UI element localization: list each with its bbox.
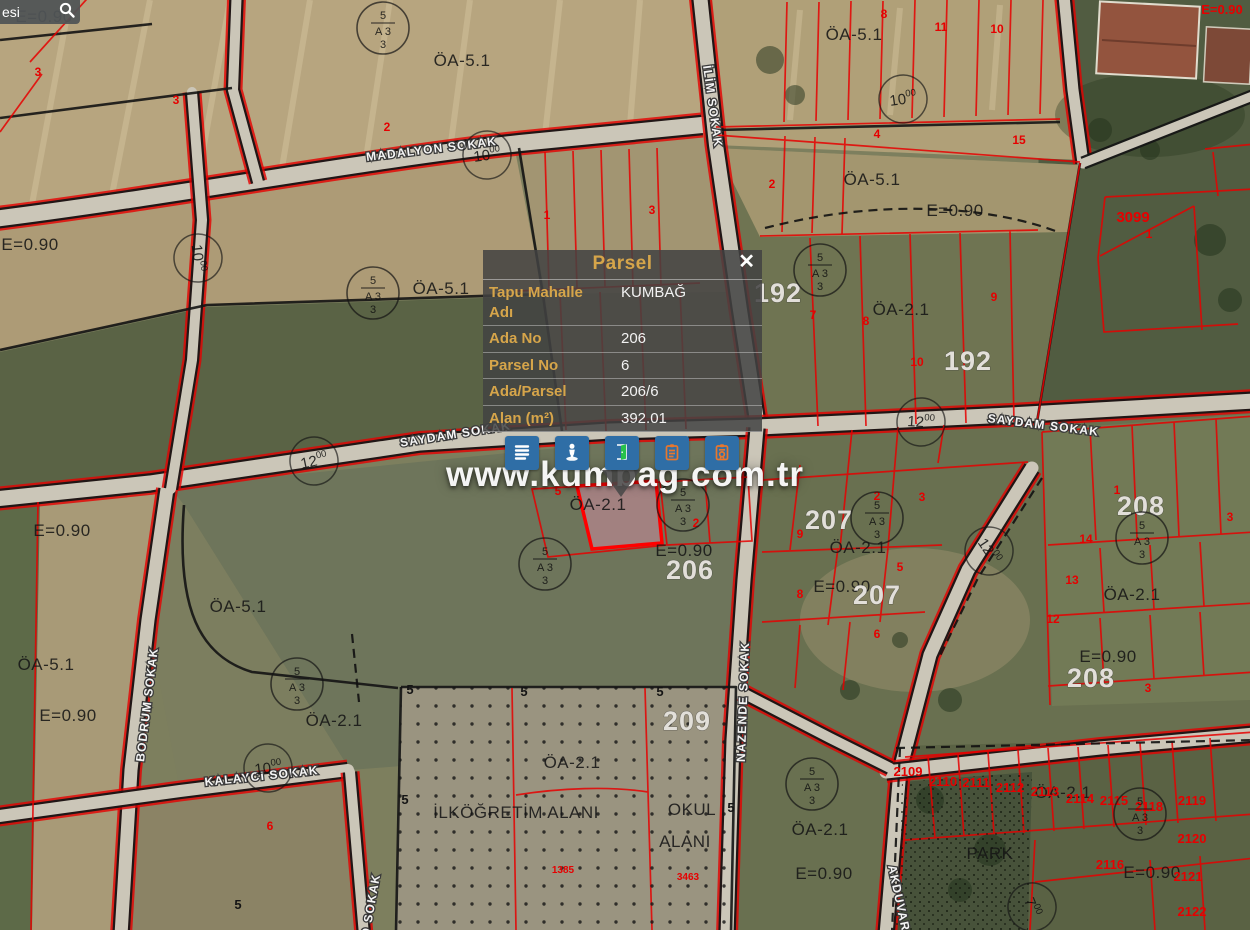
svg-text:5: 5 — [1139, 520, 1145, 532]
svg-text:A 3: A 3 — [365, 291, 381, 303]
spot-marker: 5 — [656, 684, 663, 699]
svg-text:5: 5 — [809, 766, 815, 778]
close-icon[interactable]: ✕ — [738, 251, 755, 273]
menu-list-icon — [512, 442, 532, 465]
svg-text:5: 5 — [680, 487, 686, 499]
parcel-number: 2 — [769, 177, 776, 191]
block-number: 206 — [666, 555, 714, 585]
parcel-number: 3 — [919, 490, 926, 504]
svg-text:5: 5 — [874, 500, 880, 512]
svg-text:3: 3 — [542, 575, 548, 587]
zone-label: ÖA-5.1 — [18, 655, 75, 674]
parcel-number: 2109 — [894, 764, 923, 779]
popup-row: Parsel No 6 — [483, 353, 762, 380]
block-number: 209 — [663, 706, 711, 736]
parcel-number: 3 — [1145, 681, 1152, 695]
popup-row: Alan (m²) 392.01 — [483, 406, 762, 433]
parcel-number: 2113 — [1031, 784, 1059, 799]
parcel-number: 8 — [863, 314, 870, 328]
zone-label: ÖA-2.1 — [1104, 585, 1161, 604]
svg-text:3: 3 — [370, 304, 376, 316]
zone-label: ÖA-2.1 — [570, 495, 627, 514]
parcel-number: 7 — [810, 308, 817, 322]
svg-text:5: 5 — [370, 275, 376, 287]
parcel-number: 10 — [910, 355, 924, 369]
row-label: Alan (m²) — [489, 409, 595, 429]
parcel-number: 5 — [897, 560, 904, 574]
zone-label: ÖA-2.1 — [792, 820, 849, 839]
svg-text:A 3: A 3 — [1132, 812, 1148, 824]
svg-text:5: 5 — [542, 546, 548, 558]
clipboard-button[interactable] — [655, 436, 689, 470]
report-icon — [712, 442, 732, 465]
search-bar: esi — [0, 0, 80, 24]
popup-row: Ada No 206 — [483, 326, 762, 353]
parcel-number: 15 — [1012, 133, 1026, 147]
parcel-number: 6 — [874, 627, 881, 641]
zone-label: ÖA-5.1 — [413, 279, 470, 298]
row-label: Tapu Mahalle Adı — [489, 283, 595, 322]
search-icon[interactable] — [58, 1, 76, 24]
popup-row: Tapu Mahalle Adı KUMBAĞ — [483, 280, 762, 326]
zone-label: E=0.90 — [926, 201, 983, 220]
popup-toolbar — [505, 436, 739, 470]
parcel-number: 9 — [797, 527, 804, 541]
zone-label: ÖA-5.1 — [210, 597, 267, 616]
zone-label: E=0.90 — [795, 864, 852, 883]
parcel-number: 2116 — [1096, 857, 1124, 872]
svg-text:3: 3 — [1137, 825, 1143, 837]
parcel-number: 3463 — [677, 872, 700, 883]
svg-text:A 3: A 3 — [537, 562, 553, 574]
parcel-popup: Parsel ✕ Tapu Mahalle Adı KUMBAĞ Ada No … — [483, 250, 762, 432]
door-button[interactable] — [605, 436, 639, 470]
parcel-number: 1 — [1146, 227, 1153, 241]
parcel-number: 2110 — [929, 774, 957, 789]
popup-title: Parsel — [592, 253, 652, 274]
svg-text:A 3: A 3 — [812, 268, 828, 280]
block-number: 192 — [944, 346, 992, 376]
spot-marker: 5 — [234, 897, 241, 912]
parcel-number: 14 — [1079, 532, 1093, 546]
row-value: 206 — [621, 329, 756, 349]
popup-pointer — [602, 470, 640, 497]
zone-label: E=0.90 — [1123, 863, 1180, 882]
door-icon — [612, 442, 632, 465]
parcel-number: 3 — [1227, 510, 1234, 524]
street-view-icon — [562, 442, 582, 465]
zone-label: ÖA-2.1 — [306, 711, 363, 730]
svg-text:5: 5 — [294, 666, 300, 678]
parcel-number: 2111 — [962, 775, 990, 790]
svg-text:A 3: A 3 — [869, 516, 885, 528]
row-value: 206/6 — [621, 382, 756, 402]
parcel-number: 2121 — [1174, 869, 1203, 884]
parcel-number: 11 — [935, 20, 948, 34]
row-label: Ada No — [489, 329, 595, 349]
svg-text:3: 3 — [380, 39, 386, 51]
parcel-number: 9 — [991, 290, 998, 304]
zone-label: E=0.90 — [39, 706, 96, 725]
parcel-number: 1385 — [552, 865, 575, 876]
spot-marker: 5 — [406, 682, 413, 697]
svg-text:5: 5 — [817, 252, 823, 264]
parcel-number: 2120 — [1178, 831, 1207, 846]
parcel-number: 3099 — [1116, 209, 1149, 226]
popup-row: Ada/Parsel 206/6 — [483, 379, 762, 406]
search-input[interactable]: esi — [2, 4, 20, 20]
parcel-number: 2 — [384, 120, 391, 134]
parcel-number: E=0.90 — [1201, 2, 1243, 17]
svg-text:A 3: A 3 — [804, 782, 820, 794]
parcel-number: 2119 — [1178, 793, 1206, 808]
row-value: 6 — [621, 356, 756, 376]
parcel-number: 2112 — [996, 780, 1024, 795]
block-number: 207 — [853, 580, 901, 610]
zone-label: ÖA-5.1 — [434, 51, 491, 70]
svg-text:3: 3 — [874, 529, 880, 541]
svg-text:3: 3 — [809, 795, 815, 807]
zone-label: ÖA-5.1 — [826, 25, 883, 44]
zone-label: ÖA-2.1 — [873, 300, 930, 319]
parcel-number: 13 — [1065, 573, 1079, 587]
spot-marker: 5 — [727, 800, 734, 815]
row-label: Ada/Parsel — [489, 382, 595, 402]
svg-text:A 3: A 3 — [675, 503, 691, 515]
row-label: Parsel No — [489, 356, 595, 376]
street-view-button[interactable] — [555, 436, 589, 470]
svg-text:A 3: A 3 — [375, 26, 391, 38]
spot-marker: 5 — [520, 684, 527, 699]
parcel-number: 12 — [1046, 612, 1060, 626]
parcel-number: 2114 — [1066, 791, 1095, 806]
zone-label: E=0.90 — [33, 521, 90, 540]
svg-text:3: 3 — [294, 695, 300, 707]
zone-label: İLKÖĞRETİM ALANI — [433, 803, 599, 822]
zone-label: OKUL — [668, 800, 716, 819]
parcel-number: 10 — [990, 22, 1004, 36]
svg-text:3: 3 — [680, 516, 686, 528]
svg-text:3: 3 — [817, 281, 823, 293]
parcel-number: 8 — [881, 7, 888, 21]
parcel-number: 3 — [35, 65, 42, 79]
popup-header: Parsel ✕ — [483, 250, 762, 280]
zone-label: ALANI — [659, 832, 711, 851]
block-number: 208 — [1067, 663, 1115, 693]
parcel-number: 2115 — [1100, 793, 1128, 808]
row-value: 392.01 — [621, 409, 756, 429]
parcel-number: 4 — [874, 127, 881, 141]
parcel-number: 3 — [649, 203, 656, 217]
block-number: 207 — [805, 505, 853, 535]
svg-text:5: 5 — [380, 10, 386, 22]
report-button[interactable] — [705, 436, 739, 470]
zone-label: ÖA-5.1 — [844, 170, 901, 189]
zone-label: PARK — [966, 844, 1013, 863]
svg-text:3: 3 — [1139, 549, 1145, 561]
svg-text:A 3: A 3 — [1134, 536, 1150, 548]
spot-marker: 5 — [401, 792, 408, 807]
parcel-number: 2122 — [1178, 904, 1207, 919]
parcel-number: 5 — [555, 484, 562, 498]
svg-text:A 3: A 3 — [289, 682, 305, 694]
parcel-number: 3 — [173, 93, 180, 107]
svg-text:5: 5 — [1137, 796, 1143, 808]
row-value: KUMBAĞ — [621, 283, 756, 322]
parcel-number: 6 — [267, 819, 274, 833]
zone-label: ÖA-2.1 — [544, 753, 601, 772]
zone-label: E=0.90 — [1, 235, 58, 254]
parcel-number: 1 — [544, 208, 551, 222]
clipboard-icon — [662, 442, 682, 465]
menu-list-button[interactable] — [505, 436, 539, 470]
parcel-number: 8 — [797, 587, 804, 601]
parcel-number: 1 — [1114, 483, 1121, 497]
